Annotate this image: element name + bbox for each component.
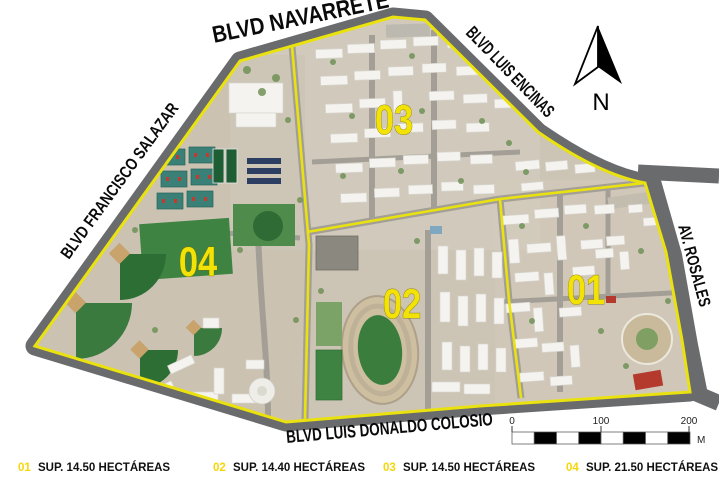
parking-shades — [247, 158, 281, 184]
north-arrow-right-blade — [598, 26, 622, 84]
legend-item-number: 01 — [18, 462, 31, 474]
scale-tick-100: 100 — [593, 416, 610, 427]
zone-marker-04: 04 — [179, 239, 218, 286]
map-figure: 03 02 01 04 BLVD NAVARRETE BLVD LUIS ENC… — [0, 0, 719, 494]
north-arrow-left-blade — [575, 26, 598, 84]
north-label: N — [592, 89, 609, 116]
legend-item-number: 04 — [566, 462, 579, 474]
legend-item-02: 02 SUP. 14.40 HECTÁREAS — [213, 461, 365, 474]
scale-bar: 0 100 200 M — [509, 416, 705, 446]
legend-item-text: SUP. 21.50 HECTÁREAS — [586, 461, 718, 474]
zone-marker-02: 02 — [383, 281, 421, 328]
legend-item-text: SUP. 14.40 HECTÁREAS — [233, 461, 365, 474]
scale-unit: M — [697, 435, 705, 446]
legend-item-text: SUP. 14.50 HECTÁREAS — [38, 461, 170, 474]
campus-map: 03 02 01 04 BLVD NAVARRETE BLVD LUIS ENC… — [0, 0, 719, 494]
scale-bar-segments — [512, 432, 690, 444]
legend-item-number: 03 — [383, 462, 396, 474]
zone-marker-01: 01 — [567, 267, 605, 314]
north-arrow: N — [575, 26, 622, 116]
legend-item-text: SUP. 14.50 HECTÁREAS — [403, 461, 535, 474]
legend-item-04: 04 SUP. 21.50 HECTÁREAS — [566, 461, 718, 474]
scale-tick-0: 0 — [509, 416, 515, 427]
scale-tick-200: 200 — [681, 416, 698, 427]
zone-marker-03: 03 — [375, 97, 413, 144]
legend-item-03: 03 SUP. 14.50 HECTÁREAS — [383, 461, 535, 474]
legend-item-number: 02 — [213, 462, 226, 474]
legend: 01 SUP. 14.50 HECTÁREAS 02 SUP. 14.40 HE… — [18, 461, 718, 474]
legend-item-01: 01 SUP. 14.50 HECTÁREAS — [18, 461, 170, 474]
